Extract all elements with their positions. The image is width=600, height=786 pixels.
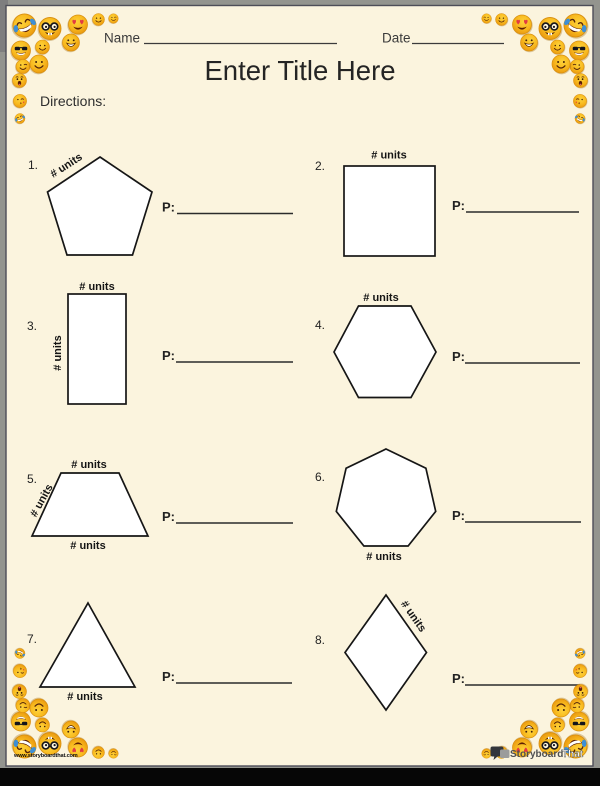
svg-text:That: That [562, 749, 584, 760]
svg-text:5.: 5. [27, 472, 37, 486]
svg-text:P:: P: [162, 348, 175, 363]
svg-text:P:: P: [162, 669, 175, 684]
svg-text:Date: Date [382, 31, 411, 46]
svg-text:1.: 1. [28, 158, 38, 172]
svg-text:3.: 3. [27, 319, 37, 333]
svg-text:Directions:: Directions: [40, 93, 106, 109]
svg-text:2.: 2. [315, 159, 325, 173]
svg-text:Enter Title Here: Enter Title Here [204, 55, 395, 86]
svg-text:# units: # units [70, 540, 105, 552]
svg-text:# units: # units [67, 691, 102, 703]
svg-text:4.: 4. [315, 318, 325, 332]
svg-text:# units: # units [71, 459, 106, 471]
svg-text:6.: 6. [315, 470, 325, 484]
svg-text:# units: # units [363, 292, 398, 304]
svg-text:P:: P: [162, 509, 175, 524]
svg-text:P:: P: [452, 671, 465, 686]
svg-text:P:: P: [452, 508, 465, 523]
svg-text:7.: 7. [27, 632, 37, 646]
svg-text:# units: # units [371, 150, 406, 162]
svg-text:8.: 8. [315, 633, 325, 647]
svg-text:Storyboard: Storyboard [510, 749, 563, 760]
svg-text:P:: P: [162, 200, 175, 215]
svg-text:www.storyboardthat.com: www.storyboardthat.com [13, 753, 78, 759]
svg-text:# units: # units [366, 551, 401, 563]
svg-text:Name: Name [104, 31, 140, 46]
svg-text:# units: # units [79, 281, 114, 293]
svg-text:# units: # units [52, 335, 64, 370]
svg-text:P:: P: [452, 198, 465, 213]
svg-text:P:: P: [452, 349, 465, 364]
